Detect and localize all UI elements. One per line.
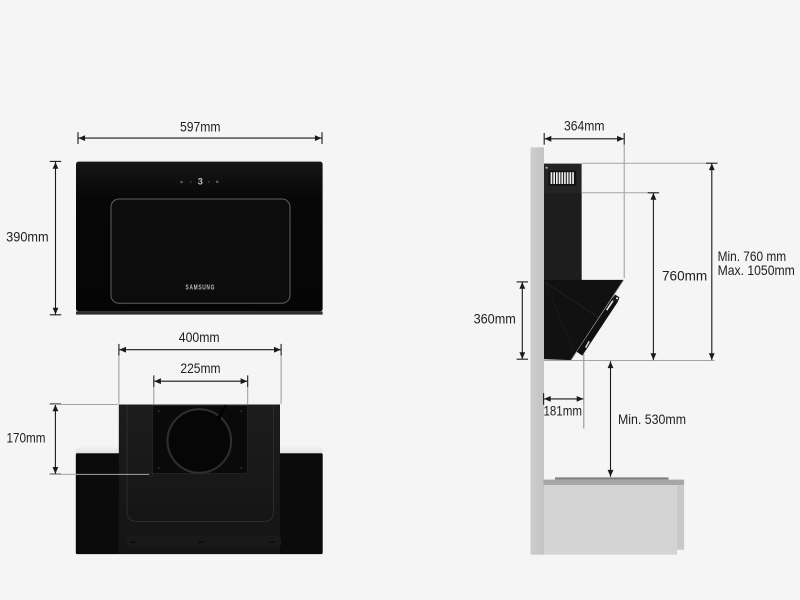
svg-text:170mm: 170mm: [7, 429, 46, 445]
svg-text:360mm: 360mm: [474, 311, 516, 327]
svg-text:3: 3: [198, 176, 203, 187]
svg-text:225mm: 225mm: [180, 360, 220, 376]
svg-text:390mm: 390mm: [6, 229, 49, 245]
svg-text:400mm: 400mm: [179, 329, 220, 345]
svg-text:181mm: 181mm: [543, 403, 582, 419]
svg-text:760mm: 760mm: [662, 268, 707, 284]
svg-text:Max. 1050mm: Max. 1050mm: [718, 262, 795, 278]
svg-text:Min. 530mm: Min. 530mm: [618, 411, 686, 427]
svg-text:597mm: 597mm: [180, 118, 221, 134]
svg-text:SAMSUNG: SAMSUNG: [186, 285, 216, 292]
svg-text:364mm: 364mm: [564, 118, 605, 134]
